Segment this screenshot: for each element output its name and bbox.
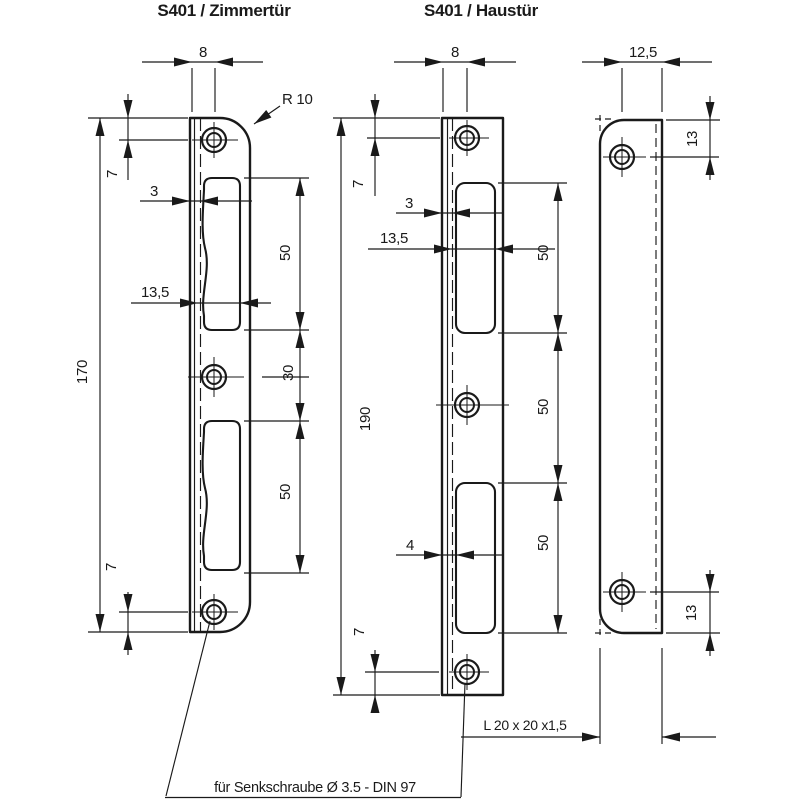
- zimmertuer-dim-cutout-chain: 50 30 50: [244, 178, 309, 573]
- haustuer-bottom-offset-label: 7: [351, 628, 368, 636]
- haustuer-front-view: 8 7 3 13,5: [333, 44, 567, 713]
- side-screw-hole-top: [603, 137, 646, 177]
- drawing-titles: S401 / Zimmertür S401 / Haustür: [157, 1, 538, 20]
- zimmertuer-screw-hole-top: [192, 122, 238, 158]
- title-haustuer: S401 / Haustür: [424, 1, 539, 20]
- side-dim-top-offset: 13: [650, 96, 720, 180]
- haustuer-plate-outline: [442, 118, 503, 695]
- zimmertuer-lip-label: 3: [150, 183, 158, 200]
- zimmertuer-dim-width: 8: [142, 44, 263, 112]
- technical-drawing-page: S401 / Zimmertür S401 / Haustür: [0, 0, 800, 800]
- zimmertuer-view: 8 R 10 7 3 13,5: [74, 44, 313, 655]
- screw-note-label: für Senkschraube Ø 3.5 - DIN 97: [214, 780, 416, 796]
- zimmertuer-bolt-cutout: [203, 421, 240, 570]
- side-plate-outline: [600, 120, 662, 633]
- haustuer-height-label: 190: [357, 407, 374, 431]
- zimmertuer-radius-label: R 10: [282, 91, 313, 108]
- strike-plate-drawing: S401 / Zimmertür S401 / Haustür: [0, 0, 800, 800]
- side-width-label: 12,5: [629, 44, 657, 61]
- haustuer-screw-hole-bottom: [449, 654, 489, 690]
- haustuer-dim-cutout-width: 13,5: [368, 230, 555, 254]
- haustuer-width-label: 8: [451, 44, 459, 61]
- zimmertuer-dim-bottom-offset: 7: [103, 563, 188, 655]
- haustuer-dim-height: 190: [333, 118, 440, 695]
- zimmertuer-gap-label: 30: [280, 365, 297, 381]
- zimmertuer-screw-hole-bottom: [192, 594, 238, 630]
- haustuer-dim-bolt-lip: 4: [396, 537, 504, 560]
- side-screw-hole-bottom: [603, 572, 646, 612]
- haustuer-cutout-width-label: 13,5: [380, 230, 408, 247]
- haustuer-latch-cutout-label: 50: [535, 245, 552, 261]
- haustuer-gap-label: 50: [535, 399, 552, 415]
- haustuer-bolt-lip-label: 4: [406, 537, 414, 554]
- zimmertuer-top-offset-label: 7: [104, 170, 121, 178]
- haustuer-dim-width: 8: [394, 44, 516, 112]
- side-dim-width: 12,5: [582, 44, 712, 112]
- screw-note: für Senkschraube Ø 3.5 - DIN 97: [165, 621, 465, 798]
- zimmertuer-dim-height: 170: [74, 118, 188, 632]
- zimmertuer-bottom-offset-label: 7: [103, 563, 120, 571]
- leader-haustuer-screw: [461, 683, 465, 797]
- zimmertuer-latch-cutout-label: 50: [277, 245, 294, 261]
- haustuer-top-offset-label: 7: [350, 180, 367, 188]
- zimmertuer-screw-hole-middle: [188, 357, 244, 397]
- zimmertuer-cutout-width-label: 13,5: [141, 284, 169, 301]
- haustuer-dim-lip: 3: [396, 195, 504, 218]
- side-bottom-offset-label: 13: [683, 605, 700, 621]
- haustuer-dim-bottom-offset: 7: [351, 628, 439, 713]
- side-dim-bottom-offset: 13: [650, 570, 720, 656]
- haustuer-screw-hole-top: [449, 120, 489, 156]
- haustuer-lip-label: 3: [405, 195, 413, 212]
- profile-label: L 20 x 20 x1,5: [483, 717, 567, 733]
- zimmertuer-bolt-cutout-label: 50: [277, 484, 294, 500]
- zimmertuer-width-label: 8: [199, 44, 207, 61]
- side-top-offset-label: 13: [684, 131, 701, 147]
- title-zimmertuer: S401 / Zimmertür: [157, 1, 291, 20]
- zimmertuer-dim-top-offset: 7: [104, 94, 188, 180]
- zimmertuer-dim-lip: 3: [140, 183, 252, 206]
- haustuer-dim-top-offset: 7: [350, 94, 440, 196]
- zimmertuer-height-label: 170: [74, 360, 91, 384]
- zimmertuer-dim-radius: R 10: [254, 91, 313, 124]
- haustuer-side-view: 12,5 13 13 L 20 x 20 x: [461, 44, 720, 744]
- leader-zimmertuer-screw: [166, 621, 210, 796]
- haustuer-latch-cutout: [456, 183, 495, 333]
- haustuer-bolt-cutout-label: 50: [535, 535, 552, 551]
- haustuer-bolt-cutout: [456, 483, 495, 633]
